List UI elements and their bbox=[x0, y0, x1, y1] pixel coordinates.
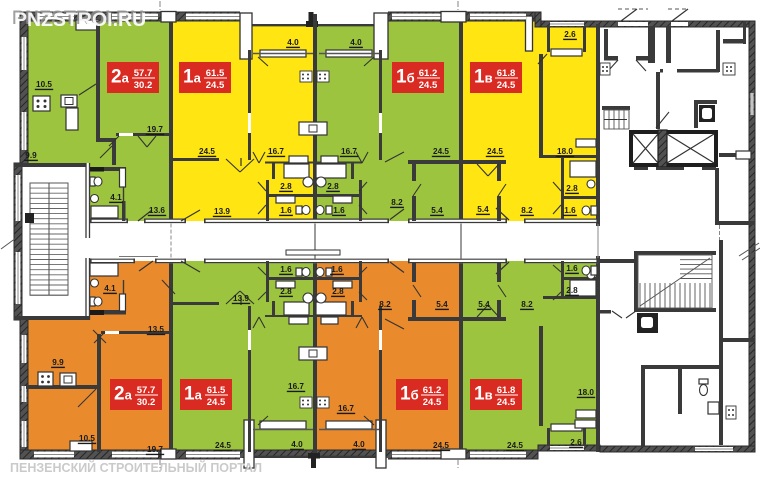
svg-text:24.5: 24.5 bbox=[487, 147, 503, 156]
svg-text:2а: 2а bbox=[111, 67, 130, 88]
svg-text:61.8: 61.8 bbox=[497, 385, 516, 396]
svg-text:5.4: 5.4 bbox=[436, 300, 448, 309]
svg-text:24.5: 24.5 bbox=[507, 441, 523, 450]
svg-text:57.7: 57.7 bbox=[134, 68, 153, 79]
svg-text:2.8: 2.8 bbox=[327, 182, 339, 191]
svg-text:24.5: 24.5 bbox=[199, 147, 215, 156]
svg-text:24.5: 24.5 bbox=[497, 80, 516, 91]
svg-text:4.0: 4.0 bbox=[287, 38, 299, 47]
svg-text:9.9: 9.9 bbox=[25, 151, 37, 160]
svg-text:1а: 1а bbox=[183, 67, 202, 88]
svg-text:19.7: 19.7 bbox=[147, 125, 163, 134]
svg-text:24.5: 24.5 bbox=[419, 80, 438, 91]
svg-text:2.8: 2.8 bbox=[566, 286, 578, 295]
svg-text:5.4: 5.4 bbox=[478, 300, 490, 309]
svg-text:2.8: 2.8 bbox=[280, 287, 292, 296]
svg-text:8.2: 8.2 bbox=[379, 300, 391, 309]
svg-text:24.5: 24.5 bbox=[206, 80, 225, 91]
svg-text:18.0: 18.0 bbox=[578, 388, 594, 397]
svg-text:13.5: 13.5 bbox=[148, 325, 164, 334]
svg-text:1.6: 1.6 bbox=[333, 206, 345, 215]
svg-text:1.6: 1.6 bbox=[280, 265, 292, 274]
svg-text:10.5: 10.5 bbox=[79, 434, 95, 443]
svg-text:10.5: 10.5 bbox=[36, 80, 52, 89]
svg-text:24.5: 24.5 bbox=[497, 397, 516, 408]
svg-text:13.9: 13.9 bbox=[233, 294, 249, 303]
svg-text:16.7: 16.7 bbox=[338, 404, 354, 413]
svg-text:4.0: 4.0 bbox=[353, 440, 365, 449]
svg-text:24.5: 24.5 bbox=[207, 397, 226, 408]
svg-text:9.9: 9.9 bbox=[52, 358, 64, 367]
svg-text:16.7: 16.7 bbox=[288, 382, 304, 391]
svg-text:61.8: 61.8 bbox=[497, 68, 516, 79]
svg-text:1в: 1в bbox=[474, 384, 493, 405]
svg-text:8.2: 8.2 bbox=[521, 300, 533, 309]
svg-text:2.6: 2.6 bbox=[570, 438, 582, 447]
svg-text:24.5: 24.5 bbox=[433, 147, 449, 156]
svg-text:2.8: 2.8 bbox=[332, 287, 344, 296]
svg-text:4.1: 4.1 bbox=[110, 193, 122, 202]
svg-text:19.7: 19.7 bbox=[147, 445, 163, 454]
svg-text:13.9: 13.9 bbox=[214, 207, 230, 216]
svg-text:16.7: 16.7 bbox=[268, 147, 284, 156]
svg-text:24.5: 24.5 bbox=[433, 441, 449, 450]
svg-text:61.5: 61.5 bbox=[207, 385, 226, 396]
svg-text:1.6: 1.6 bbox=[280, 206, 292, 215]
svg-text:5.4: 5.4 bbox=[431, 206, 443, 215]
svg-text:4.0: 4.0 bbox=[350, 38, 362, 47]
svg-text:8.2: 8.2 bbox=[391, 198, 403, 207]
svg-text:61.2: 61.2 bbox=[419, 68, 438, 79]
svg-text:16.7: 16.7 bbox=[341, 147, 357, 156]
svg-text:61.2: 61.2 bbox=[423, 385, 442, 396]
svg-text:61.5: 61.5 bbox=[206, 68, 225, 79]
svg-text:13.6: 13.6 bbox=[149, 206, 165, 215]
svg-text:2.6: 2.6 bbox=[564, 30, 576, 39]
svg-text:1.6: 1.6 bbox=[331, 265, 343, 274]
svg-text:8.2: 8.2 bbox=[521, 206, 533, 215]
svg-text:2.8: 2.8 bbox=[280, 182, 292, 191]
svg-text:PNZSTROI.RU: PNZSTROI.RU bbox=[14, 9, 146, 31]
svg-text:1б: 1б bbox=[400, 384, 419, 405]
svg-text:4.0: 4.0 bbox=[291, 440, 303, 449]
svg-text:30.2: 30.2 bbox=[134, 80, 153, 91]
svg-text:24.5: 24.5 bbox=[215, 441, 231, 450]
svg-text:1в: 1в bbox=[474, 67, 493, 88]
svg-text:1а: 1а bbox=[184, 384, 203, 405]
svg-text:2.8: 2.8 bbox=[566, 184, 578, 193]
svg-text:4.1: 4.1 bbox=[104, 284, 116, 293]
svg-text:5.4: 5.4 bbox=[477, 205, 489, 214]
svg-text:30.2: 30.2 bbox=[137, 397, 156, 408]
svg-text:1б: 1б bbox=[396, 67, 415, 88]
svg-text:ПЕНЗЕНСКИЙ СТРОИТЕЛЬНЫЙ ПОРТАЛ: ПЕНЗЕНСКИЙ СТРОИТЕЛЬНЫЙ ПОРТАЛ bbox=[10, 460, 262, 475]
svg-text:18.0: 18.0 bbox=[557, 147, 573, 156]
svg-text:57.7: 57.7 bbox=[137, 385, 156, 396]
svg-text:1.6: 1.6 bbox=[564, 206, 576, 215]
svg-text:24.5: 24.5 bbox=[423, 397, 442, 408]
svg-text:2а: 2а bbox=[114, 384, 133, 405]
svg-text:1.6: 1.6 bbox=[566, 264, 578, 273]
